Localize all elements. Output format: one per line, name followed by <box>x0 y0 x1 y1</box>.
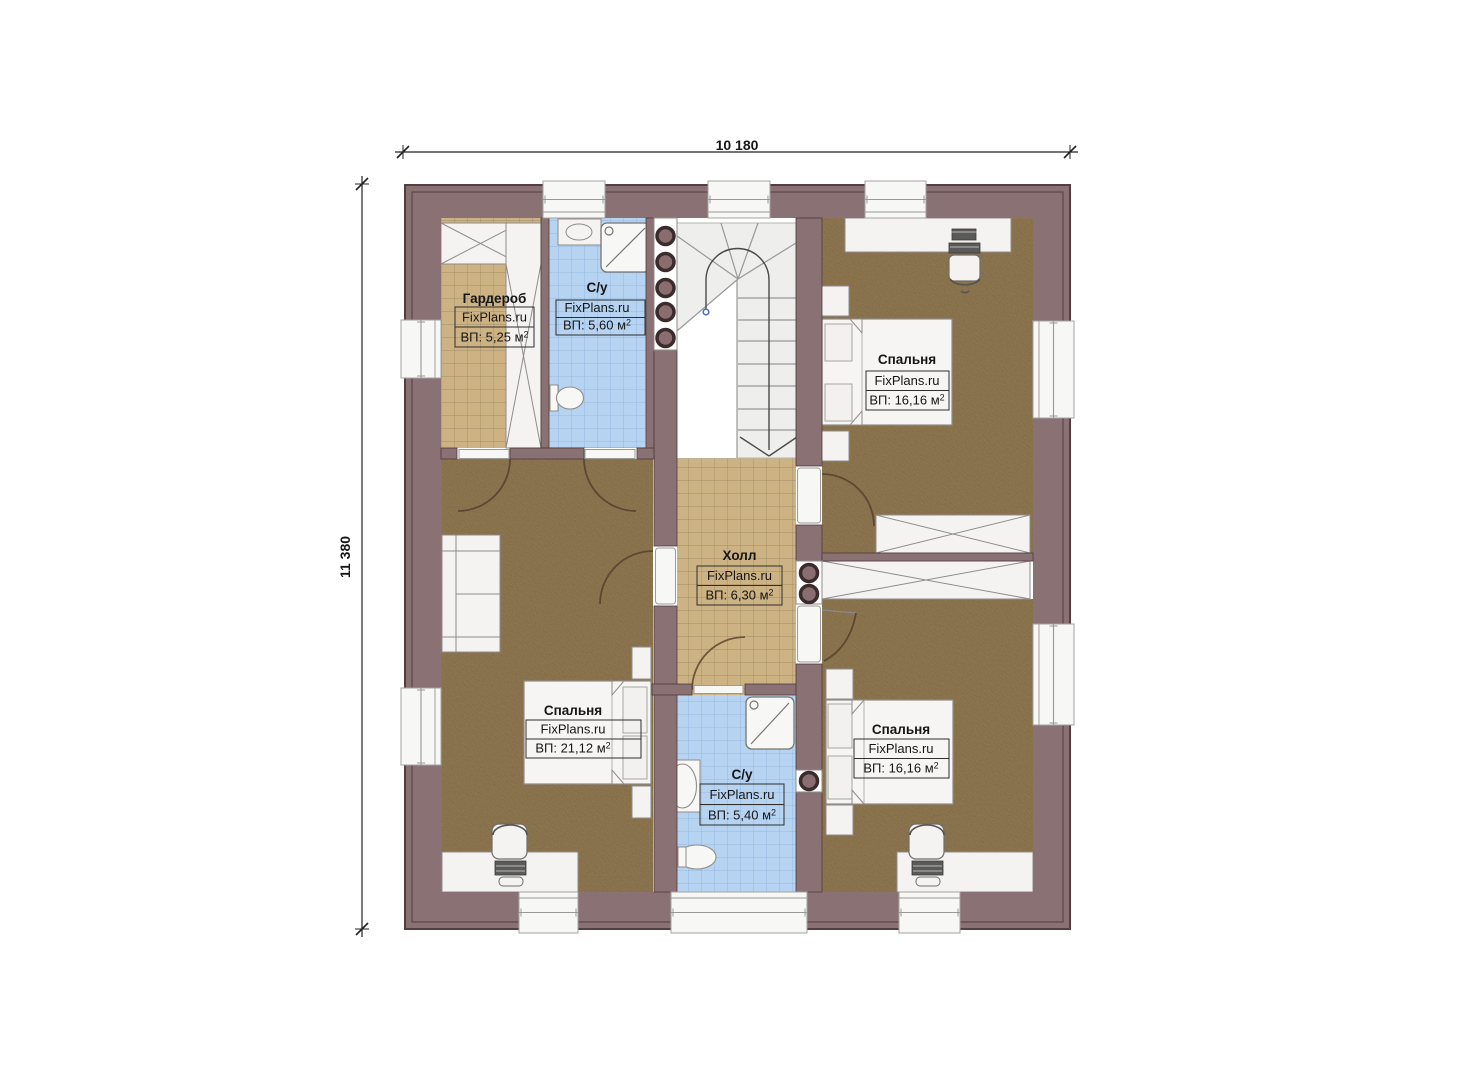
svg-text:FixPlans.ru: FixPlans.ru <box>709 787 774 802</box>
svg-text:С/у: С/у <box>586 280 608 295</box>
svg-text:FixPlans.ru: FixPlans.ru <box>540 722 605 737</box>
svg-text:ВП: 6,30 м2: ВП: 6,30 м2 <box>705 588 773 603</box>
svg-text:Спальня: Спальня <box>878 352 936 367</box>
svg-text:ВП: 21,12 м2: ВП: 21,12 м2 <box>535 741 610 756</box>
svg-text:FixPlans.ru: FixPlans.ru <box>564 300 629 315</box>
svg-text:ВП: 5,40 м2: ВП: 5,40 м2 <box>708 808 776 823</box>
svg-text:ВП: 16,16 м2: ВП: 16,16 м2 <box>863 761 938 776</box>
svg-text:FixPlans.ru: FixPlans.ru <box>874 373 939 388</box>
svg-text:ВП: 16,16 м2: ВП: 16,16 м2 <box>869 393 944 408</box>
svg-text:Спальня: Спальня <box>544 703 602 718</box>
svg-text:10 180: 10 180 <box>716 137 759 153</box>
svg-text:Гардероб: Гардероб <box>463 291 527 306</box>
svg-text:ВП: 5,25 м2: ВП: 5,25 м2 <box>460 330 528 345</box>
svg-text:FixPlans.ru: FixPlans.ru <box>462 310 527 325</box>
svg-text:ВП: 5,60 м2: ВП: 5,60 м2 <box>563 318 631 333</box>
svg-text:С/у: С/у <box>731 767 753 782</box>
svg-text:FixPlans.ru: FixPlans.ru <box>707 568 772 583</box>
svg-text:Холл: Холл <box>723 548 757 563</box>
svg-text:FixPlans.ru: FixPlans.ru <box>868 741 933 756</box>
svg-text:11 380: 11 380 <box>337 536 353 578</box>
svg-text:Спальня: Спальня <box>872 722 930 737</box>
